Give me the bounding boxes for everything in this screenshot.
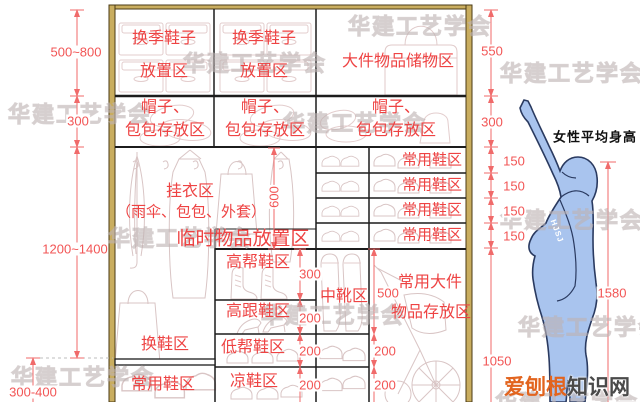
- dim-label-300-400: 300-400: [8, 386, 58, 399]
- dim-label-1580: 1580: [597, 287, 628, 300]
- zone-label-hanging-sub: （雨伞、包包、外套）: [116, 205, 266, 220]
- zone-label-mid-boots: 中靴区: [320, 289, 368, 305]
- zone-label-seasonal-shoes-2b: 放置区: [240, 64, 288, 80]
- site-watermark: 爱刨根知识网: [504, 371, 630, 401]
- dim-label-200-e: 200: [373, 379, 397, 392]
- zone-label-hats-1b: 包包存放区: [125, 123, 205, 139]
- zone-label-hats-3b: 包包存放区: [356, 123, 436, 139]
- dim-label-200-a: 200: [298, 312, 322, 325]
- zone-label-bulky-storage: 大件物品储物区: [342, 54, 454, 70]
- dim-label-500-800: 500~800: [50, 46, 103, 59]
- zone-label-daily-shoes-row2: 常用鞋区: [402, 178, 462, 193]
- site-watermark-orange: 爱刨根: [504, 376, 567, 399]
- zone-label-seasonal-shoes-1b: 放置区: [140, 64, 188, 80]
- zone-label-bulky-daily-2: 物品存放区: [391, 305, 471, 321]
- zone-label-seasonal-shoes-2: 换季鞋子: [232, 31, 296, 47]
- zone-label-hats-1: 帽子、: [141, 100, 189, 116]
- zone-label-daily-shoes-bottom: 常用鞋区: [131, 377, 195, 393]
- dim-label-200-d: 200: [373, 345, 397, 358]
- zone-label-seasonal-shoes-1: 换季鞋子: [132, 31, 196, 47]
- dim-label-550: 550: [480, 45, 504, 58]
- diagram-linework: [0, 0, 640, 402]
- dim-label-600: 600: [268, 185, 281, 209]
- zone-label-daily-shoes-row4: 常用鞋区: [402, 228, 462, 243]
- dim-label-1050: 1050: [482, 355, 513, 368]
- dim-label-300-left: 300: [66, 115, 90, 128]
- zone-label-high-heels: 高跟鞋区: [226, 304, 290, 320]
- dim-label-1200-1400: 1200~1400: [41, 243, 108, 256]
- wardrobe-dimension-diagram: 华建工艺学会 华建工艺学会 华建工艺学会 华建工艺学会 华建工艺学会 华建工艺学…: [0, 0, 640, 402]
- zone-label-low-top-shoes: 低帮鞋区: [221, 340, 285, 356]
- zone-label-hanging: 挂衣区: [166, 184, 214, 200]
- dim-label-200-c: 200: [298, 379, 322, 392]
- dim-label-150-1: 150: [502, 155, 526, 168]
- dim-label-300-right: 300: [480, 116, 504, 129]
- dim-label-150-3: 150: [502, 205, 526, 218]
- dim-label-200-b: 200: [298, 345, 322, 358]
- site-watermark-dark: 知识网: [567, 376, 630, 399]
- zone-label-hats-2b: 包包存放区: [225, 123, 305, 139]
- zone-label-bulky-daily-1: 常用大件: [398, 275, 462, 291]
- zone-label-temp-items: 临时物品放置区: [176, 230, 309, 249]
- zone-label-hats-3: 帽子、: [372, 100, 420, 116]
- figure-height-label: 女性平均身高: [553, 127, 637, 146]
- zone-label-daily-shoes-row3: 常用鞋区: [402, 203, 462, 218]
- zone-label-hats-2: 帽子、: [241, 100, 289, 116]
- zone-label-daily-shoes-row1: 常用鞋区: [402, 153, 462, 168]
- zone-label-sandals: 凉鞋区: [230, 374, 278, 390]
- zone-label-high-top-shoes: 高帮鞋区: [226, 255, 290, 271]
- dim-label-150-4: 150: [502, 230, 526, 243]
- dim-label-150-2: 150: [502, 180, 526, 193]
- zone-label-shoe-changing: 换鞋区: [141, 337, 189, 353]
- dim-label-500: 500: [376, 287, 400, 300]
- dim-label-300-mid: 300: [298, 268, 322, 281]
